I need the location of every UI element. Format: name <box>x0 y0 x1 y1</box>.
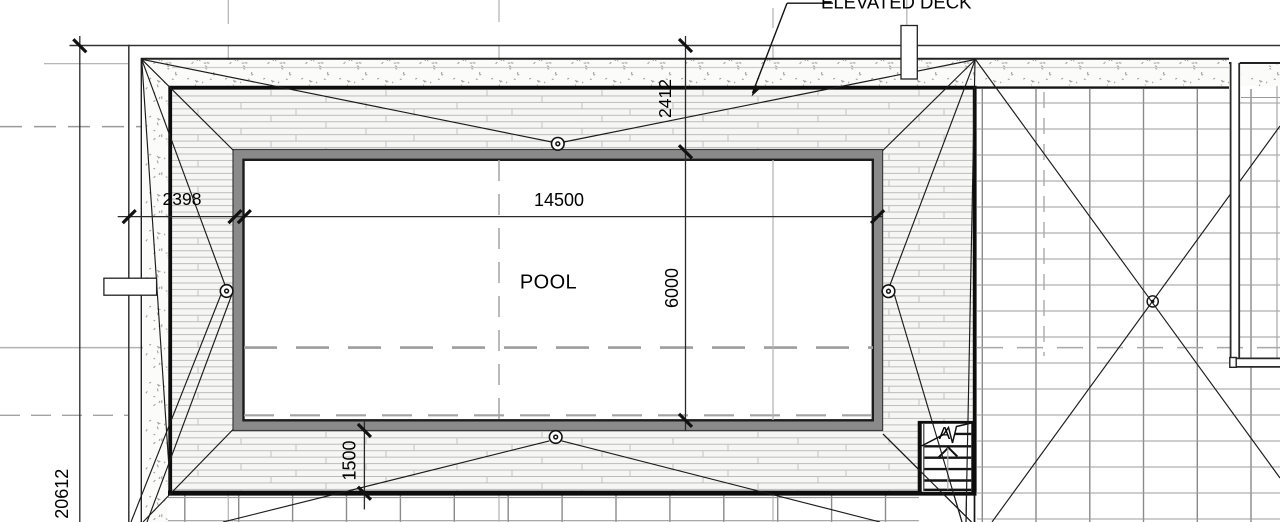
svg-text:1500: 1500 <box>340 440 360 480</box>
svg-text:ELEVATED DECK: ELEVATED DECK <box>821 0 972 13</box>
svg-text:6000: 6000 <box>662 268 682 308</box>
svg-text:POOL: POOL <box>520 272 577 294</box>
svg-text:2398: 2398 <box>163 189 202 209</box>
svg-text:2412: 2412 <box>655 79 675 118</box>
svg-text:A: A <box>939 423 951 443</box>
svg-text:20612: 20612 <box>52 469 72 519</box>
svg-text:14500: 14500 <box>534 190 584 210</box>
